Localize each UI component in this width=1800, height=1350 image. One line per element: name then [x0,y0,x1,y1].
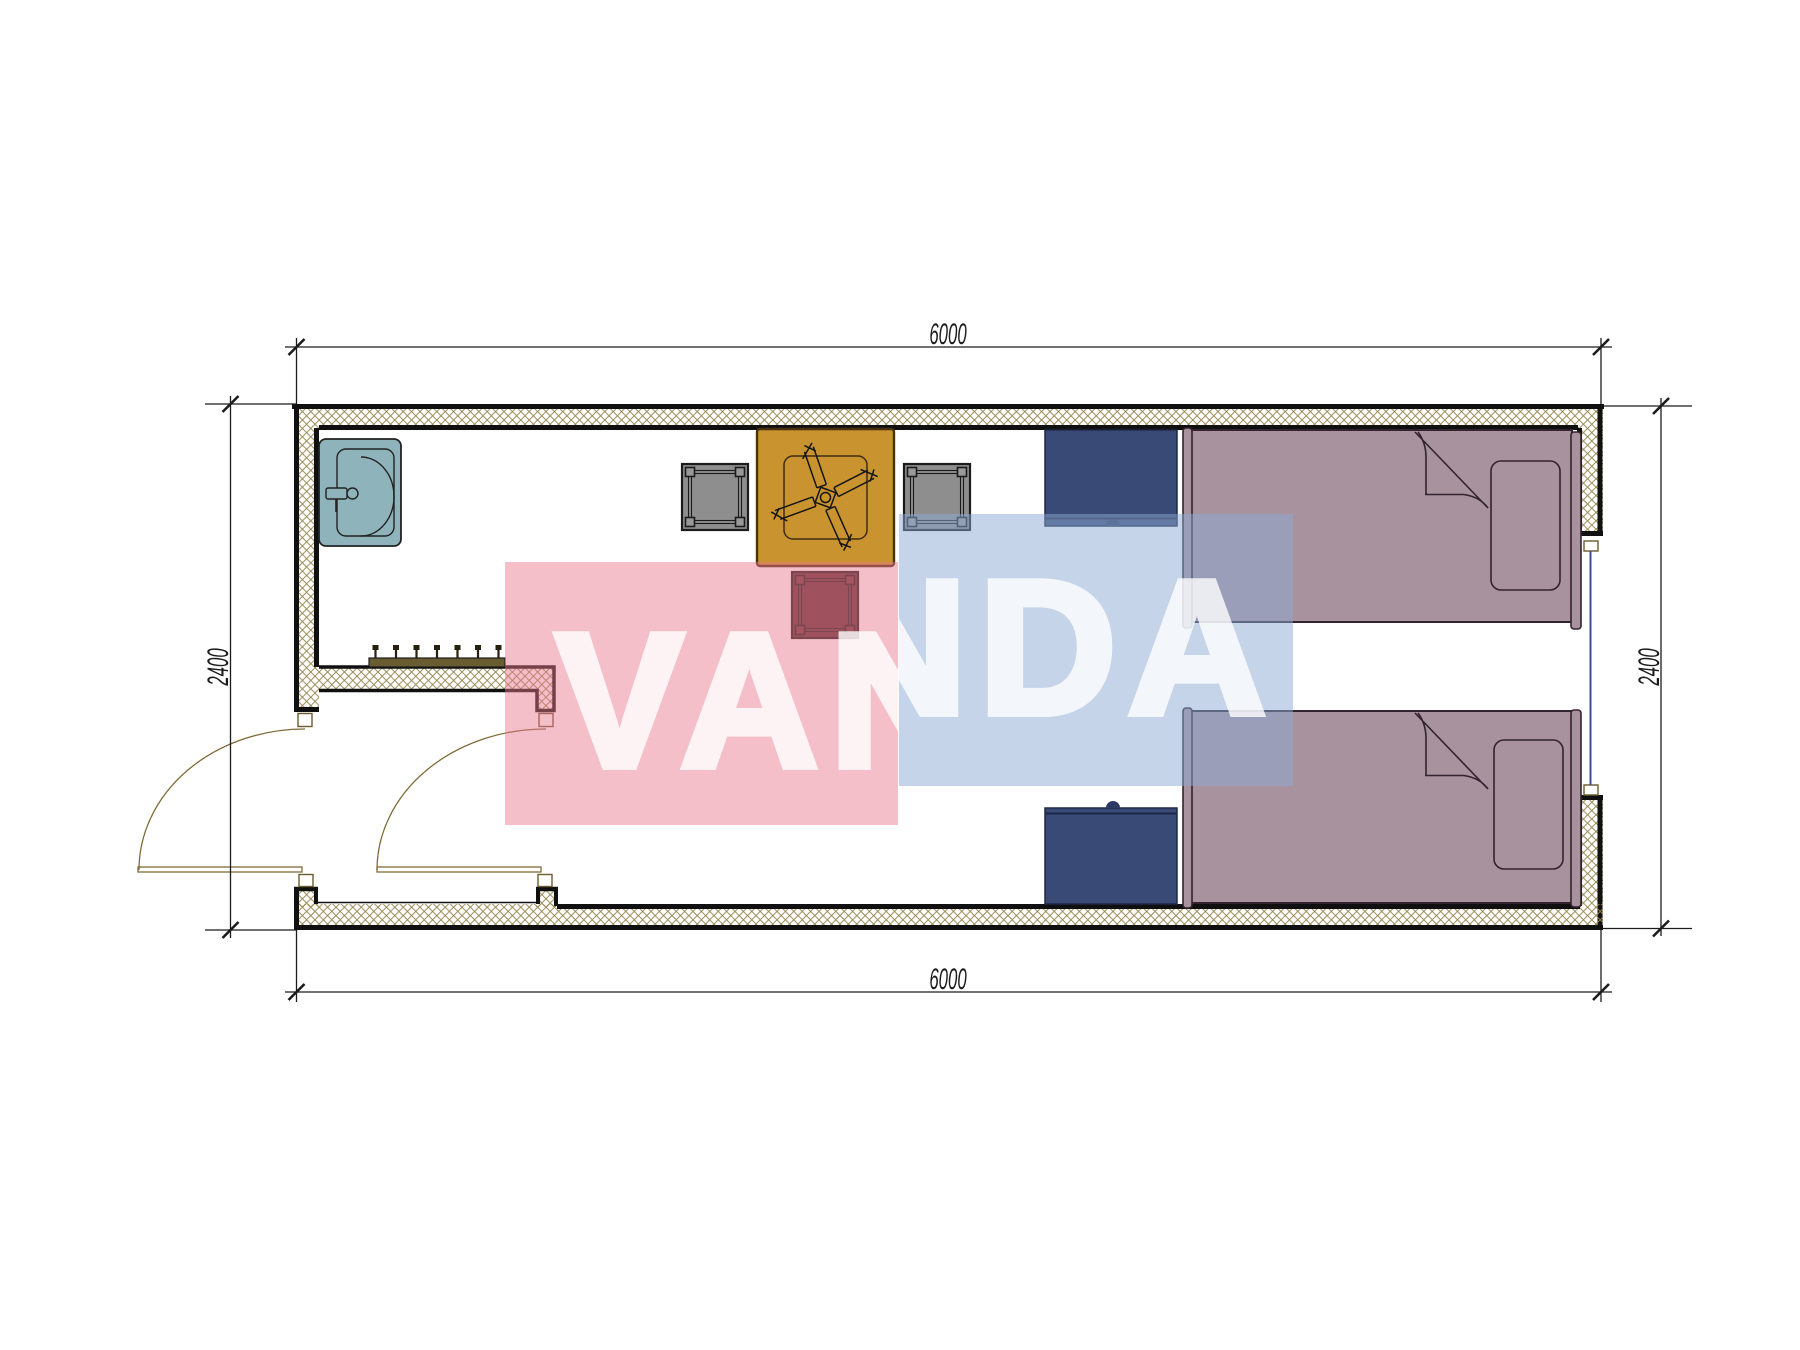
svg-text:2400: 2400 [1633,648,1666,686]
svg-text:6000: 6000 [929,963,967,996]
svg-text:6000: 6000 [929,318,967,351]
svg-text:2400: 2400 [202,648,235,686]
